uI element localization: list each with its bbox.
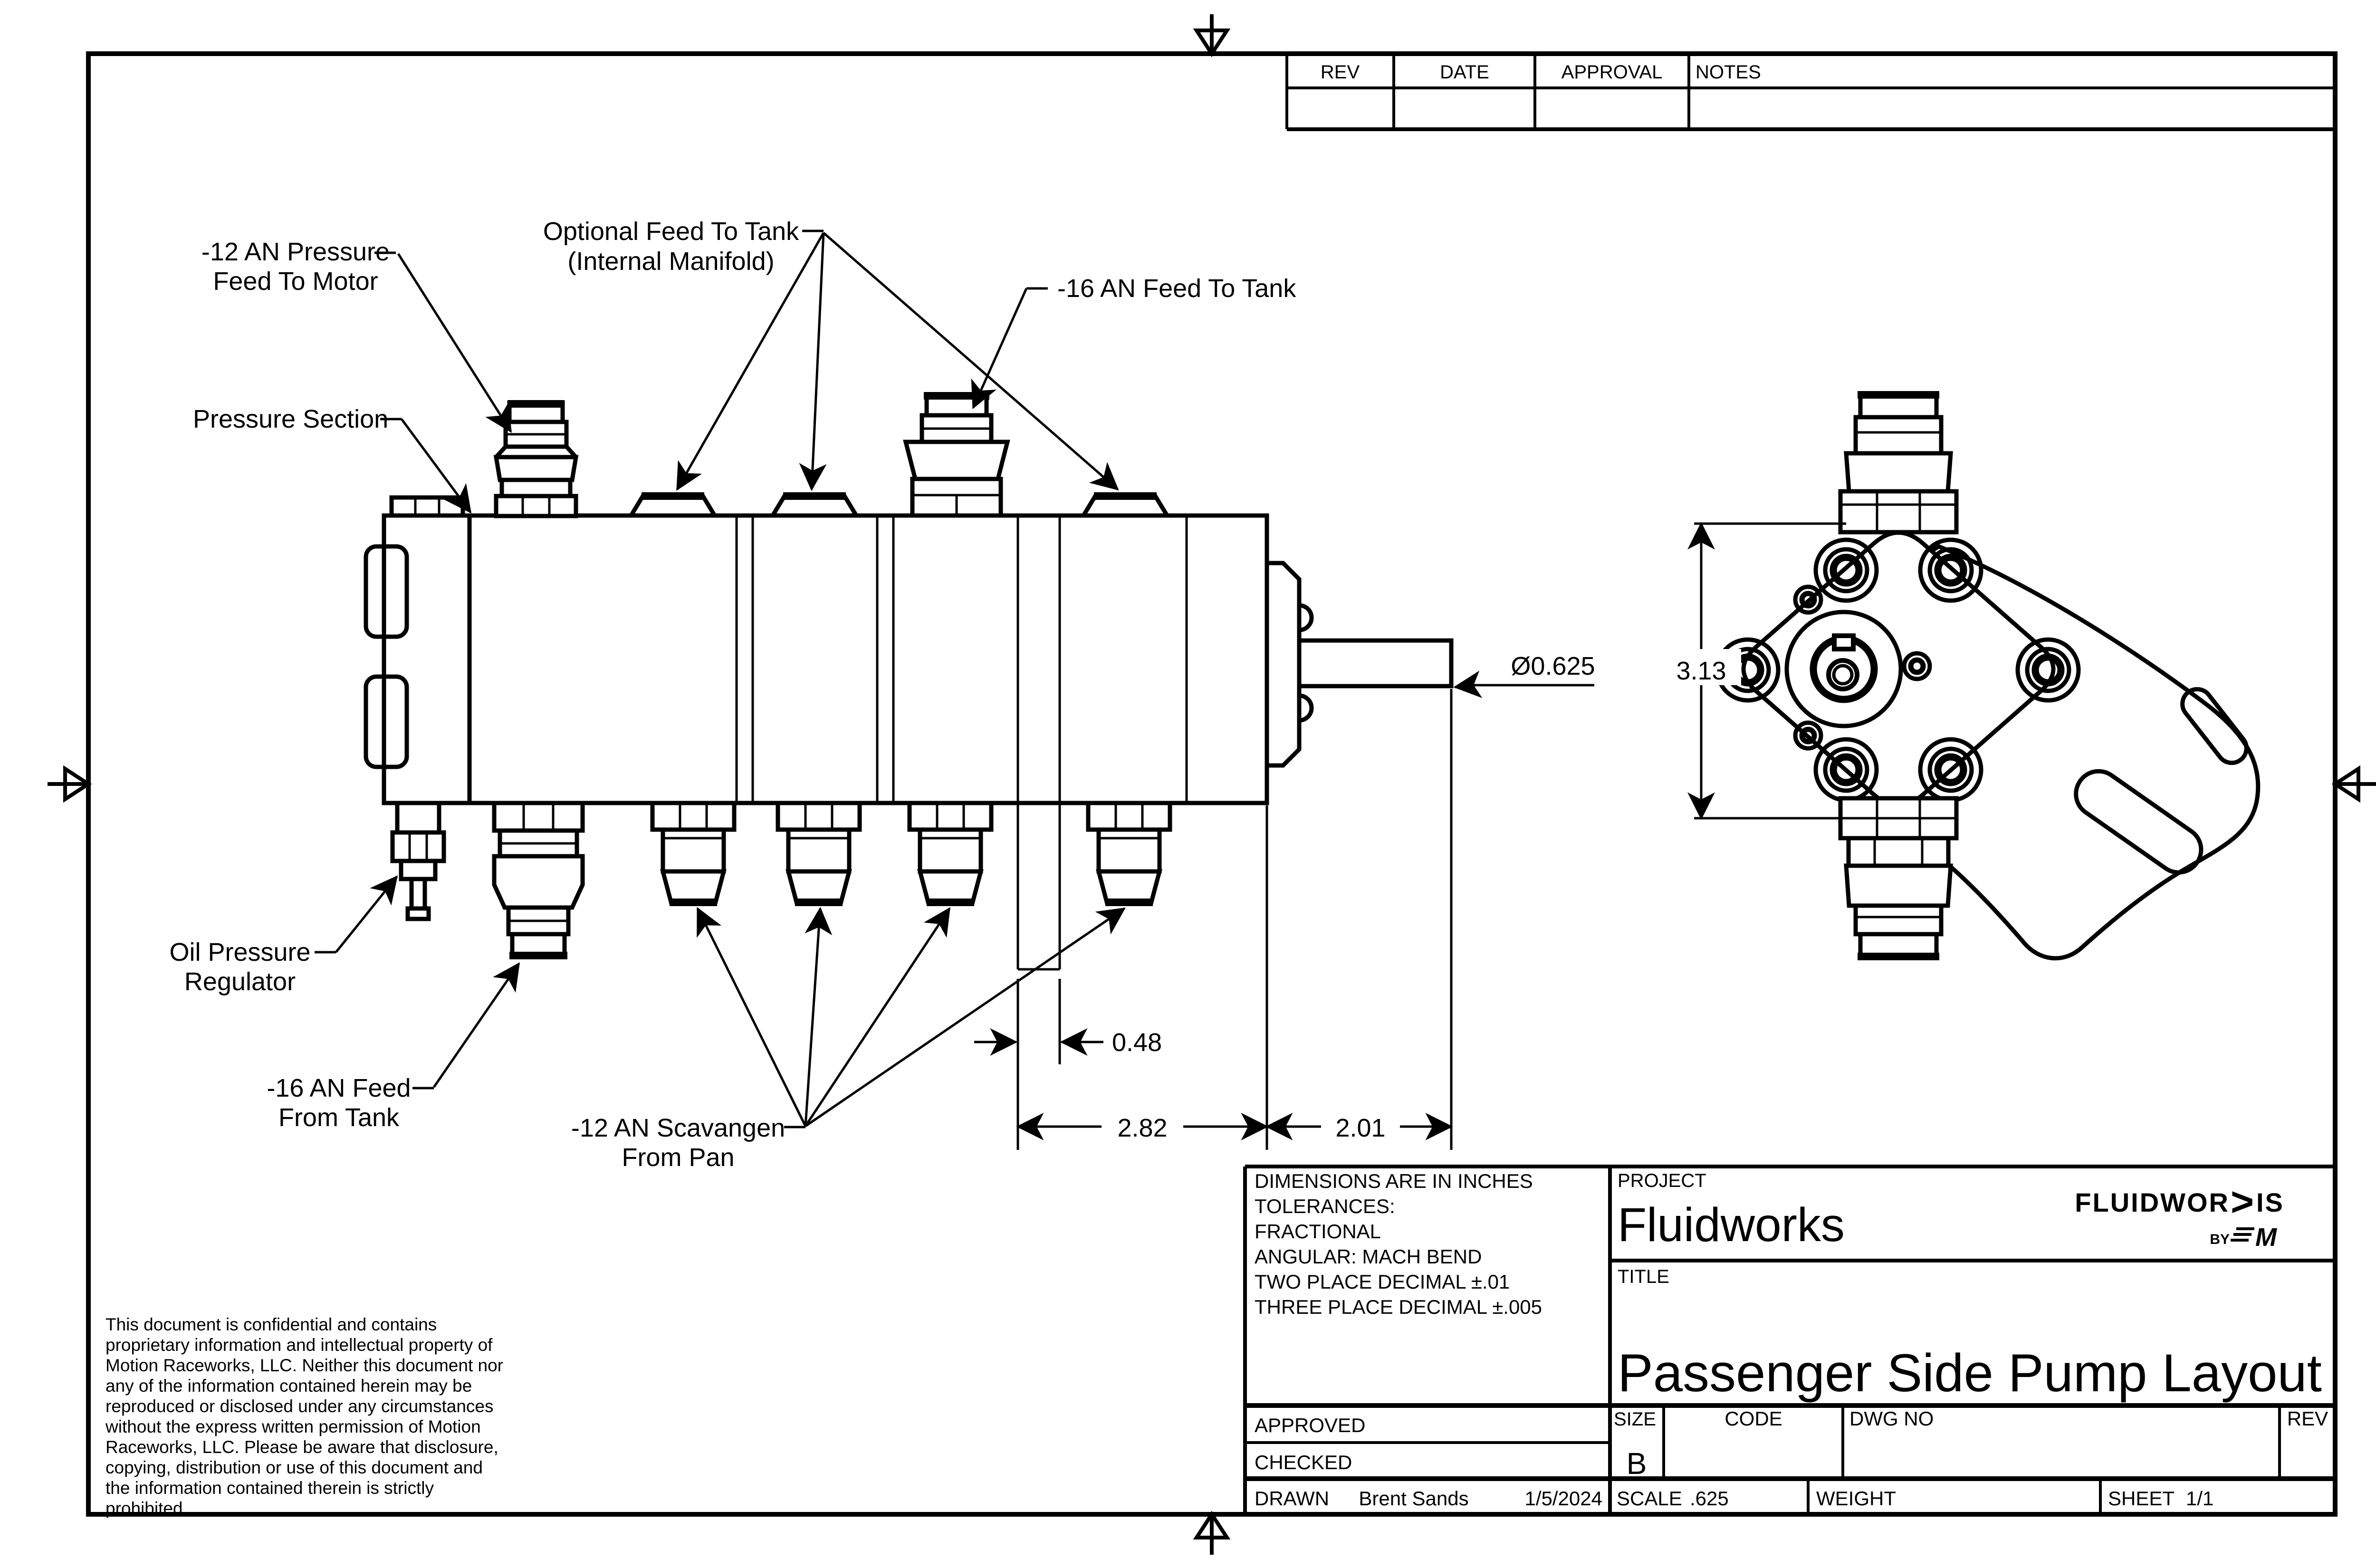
scavenge-fittings — [652, 803, 1170, 904]
callout-pressure-section-label: Pressure Section — [193, 405, 388, 433]
output-shaft — [1299, 641, 1451, 686]
confidential-line-1: This document is confidential and contai… — [105, 1315, 437, 1334]
scale-label: SCALE — [1617, 1487, 1682, 1510]
logo-chevron-icon: > — [2231, 1179, 2254, 1224]
end-view-top-fitting — [1840, 393, 1956, 532]
drawn-label: DRAWN — [1255, 1487, 1329, 1510]
checked-label: CHECKED — [1255, 1451, 1352, 1473]
title-label: TITLE — [1618, 1266, 1669, 1287]
drawn-date-value: 1/5/2024 — [1525, 1487, 1603, 1510]
dim-plate-width-text: 0.48 — [1112, 1028, 1162, 1057]
logo-by-text: BY — [2210, 1232, 2230, 1247]
scavenge-fitting-1 — [652, 803, 734, 904]
sheet-label: SHEET — [2108, 1487, 2175, 1510]
tolerance-line-3: FRACTIONAL — [1255, 1220, 1381, 1243]
pump-end-view — [1717, 393, 2258, 958]
callout-pressure-feed-line2: Feed To Motor — [213, 267, 378, 296]
drawing-sheet: REV DATE APPROVAL NOTES — [0, 0, 2376, 1568]
drawn-by-value: Brent Sands — [1359, 1487, 1468, 1510]
dim-pump-height-text: 3.13 — [1676, 657, 1726, 685]
end-view-bottom-fitting — [1840, 798, 1956, 958]
centering-mark-top — [1197, 14, 1227, 54]
confidential-line-7: Raceworks, LLC. Please be aware that dis… — [105, 1437, 498, 1457]
callout-pressure-feed-line1: -12 AN Pressure — [201, 238, 390, 266]
tolerance-notes: DIMENSIONS ARE IN INCHES TOLERANCES: FRA… — [1255, 1170, 1542, 1318]
rev-col-header: REV — [1321, 62, 1360, 83]
svg-text:M: M — [2255, 1223, 2277, 1252]
callout-oil-regulator-line1: Oil Pressure — [169, 938, 310, 966]
fitting-12an-pressure-feed — [496, 403, 576, 516]
scale-value: .625 — [1690, 1487, 1729, 1510]
callout-feed-from-tank-line1: -16 AN Feed — [267, 1074, 411, 1102]
confidential-line-9: the information contained therein is str… — [105, 1478, 434, 1498]
callout-oil-regulator-line2: Regulator — [184, 967, 296, 996]
dwg-no-label: DWG NO — [1849, 1407, 1934, 1430]
optional-port-caps — [631, 495, 1167, 516]
callout-feed-from-tank: -16 AN Feed From Tank — [267, 964, 519, 1132]
project-label: PROJECT — [1618, 1170, 1706, 1191]
callout-optional-feed-line2: (Internal Manifold) — [567, 247, 774, 276]
sheet-value: 1/1 — [2186, 1487, 2213, 1510]
tolerance-line-4: ANGULAR: MACH BEND — [1255, 1245, 1482, 1268]
tolerance-line-5: TWO PLACE DECIMAL ±.01 — [1255, 1271, 1510, 1293]
dim-shaft-length-text: 2.01 — [1335, 1114, 1385, 1142]
size-value: B — [1627, 1446, 1647, 1481]
motion-m-icon: M — [2231, 1223, 2277, 1252]
section-plate-tab — [1018, 803, 1060, 969]
callout-scavenge-line2: From Pan — [622, 1143, 734, 1172]
dimension-shaft-diameter: Ø0.625 — [1455, 652, 1595, 687]
notes-col-header: NOTES — [1696, 62, 1761, 83]
logo-text-start: FLUIDWOR — [2075, 1187, 2230, 1217]
centering-mark-left — [48, 769, 88, 799]
callout-optional-feed-line1: Optional Feed To Tank — [543, 217, 799, 246]
callout-feed-to-tank-label: -16 AN Feed To Tank — [1057, 274, 1296, 303]
dim-shaft-diameter-text: Ø0.625 — [1511, 652, 1595, 680]
logo-text-end: IS — [2256, 1187, 2284, 1217]
callout-optional-feed: Optional Feed To Tank (Internal Manifold… — [543, 217, 1118, 489]
confidential-line-5: reproduced or disclosed under any circum… — [105, 1396, 493, 1416]
tolerance-line-1: DIMENSIONS ARE IN INCHES — [1255, 1170, 1533, 1192]
callout-scavenge-line1: -12 AN Scavangen — [571, 1114, 785, 1142]
scavenge-fitting-2 — [778, 803, 860, 904]
tolerance-line-2: TOLERANCES: — [1255, 1195, 1395, 1217]
callout-pressure-feed: -12 AN Pressure Feed To Motor — [201, 238, 511, 431]
tolerance-line-6: THREE PLACE DECIMAL ±.005 — [1255, 1296, 1542, 1318]
size-label: SIZE — [1614, 1409, 1656, 1430]
scavenge-fitting-4 — [1088, 803, 1170, 904]
code-label: CODE — [1725, 1407, 1782, 1430]
callout-feed-to-tank: -16 AN Feed To Tank — [973, 274, 1296, 408]
approved-label: APPROVED — [1255, 1414, 1365, 1436]
confidential-line-6: without the express written permission o… — [105, 1417, 481, 1436]
scavenge-fitting-3 — [910, 803, 991, 904]
bearing-block — [1267, 563, 1299, 765]
project-name: Fluidworks — [1618, 1198, 1845, 1252]
revision-table: REV DATE APPROVAL NOTES — [1287, 54, 2335, 129]
fitting-16an-feed-to-tank — [906, 394, 1007, 516]
approval-col-header: APPROVAL — [1562, 62, 1663, 83]
drawing-canvas: REV DATE APPROVAL NOTES — [0, 0, 2376, 1568]
confidentiality-note: This document is confidential and contai… — [105, 1315, 503, 1518]
weight-label: WEIGHT — [1816, 1487, 1896, 1510]
centering-mark-bottom — [1197, 1514, 1227, 1555]
callout-oil-regulator: Oil Pressure Regulator — [169, 877, 397, 996]
title-block: DIMENSIONS ARE IN INCHES TOLERANCES: FRA… — [1245, 1166, 2335, 1514]
pump-side-view — [366, 394, 1451, 969]
fitting-16an-feed-from-tank — [494, 803, 583, 957]
drawing-title: Passenger Side Pump Layout — [1618, 1343, 2322, 1403]
confidential-line-10: prohibited. — [105, 1499, 188, 1518]
rev-label: REV — [2287, 1407, 2328, 1430]
pump-end-plate — [384, 516, 469, 803]
dim-body-length-text: 2.82 — [1117, 1114, 1167, 1142]
confidential-line-8: copying, distribution or use of this doc… — [105, 1458, 483, 1477]
centering-mark-right — [2335, 769, 2376, 799]
pump-body — [469, 516, 1267, 803]
hex-plug-end-plate — [392, 497, 463, 516]
callout-scavenge: -12 AN Scavangen From Pan — [571, 908, 1124, 1172]
confidential-line-2: proprietary information and intellectual… — [105, 1335, 493, 1355]
shaft-keyway — [1834, 636, 1853, 649]
date-col-header: DATE — [1440, 62, 1489, 83]
confidential-line-3: Motion Raceworks, LLC. Neither this docu… — [105, 1356, 503, 1375]
dimension-shaft-length: 2.01 — [1267, 689, 1451, 1150]
oil-pressure-regulator — [393, 803, 444, 919]
callout-feed-from-tank-line2: From Tank — [278, 1103, 400, 1132]
fluidworks-logo: FLUIDWOR > IS BY M — [2075, 1179, 2284, 1252]
confidential-line-4: any of the information contained herein … — [105, 1376, 472, 1396]
